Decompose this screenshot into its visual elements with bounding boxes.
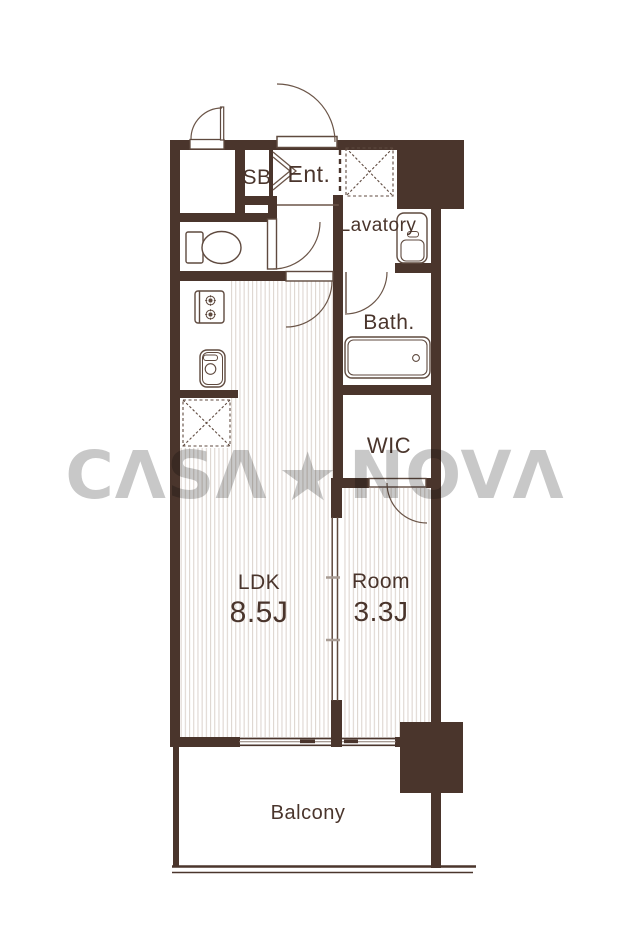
label-bath: Bath. xyxy=(363,311,415,334)
door-swing-arc xyxy=(277,84,335,142)
corner-block-top-right xyxy=(397,140,464,209)
wall-left xyxy=(170,140,180,747)
door-leaf xyxy=(277,137,337,148)
wall-kitchen-stub xyxy=(176,390,238,398)
kitchen-sink-fixture xyxy=(200,350,225,387)
door-swing-arc xyxy=(191,108,222,139)
ldk-floor xyxy=(230,281,333,737)
partition-stub-top xyxy=(331,478,342,518)
door-leaf xyxy=(369,479,426,488)
wall-wic-bottom-right xyxy=(426,478,441,488)
entrance-door xyxy=(277,84,337,148)
door-swing-arc xyxy=(345,272,387,314)
label-room: Room xyxy=(352,570,410,593)
window-center-stile xyxy=(300,740,315,744)
storage-door xyxy=(190,107,224,149)
bath-door xyxy=(345,272,387,314)
label-lavatory: Lavatory xyxy=(340,215,417,236)
kitchen-stove-fixture xyxy=(195,291,224,323)
partition-stub-bottom xyxy=(331,700,342,747)
label-balcony: Balcony xyxy=(271,802,346,824)
sliding-windows xyxy=(239,739,396,746)
door-leaf xyxy=(268,219,277,269)
wall-toilet-bottom xyxy=(170,271,286,281)
door-swing-arc xyxy=(273,222,320,269)
wall-bottom-left xyxy=(170,737,240,747)
label-ldk-area: 8.5J xyxy=(230,596,289,629)
label-sb: SB xyxy=(242,166,271,189)
ldk-floor-left-strip xyxy=(180,448,232,737)
window-center-stile xyxy=(344,740,358,744)
bathtub-fixture xyxy=(345,337,430,378)
refrigerator-space xyxy=(183,400,230,446)
label-room-area: 3.3J xyxy=(354,596,409,627)
door-leaf xyxy=(221,107,224,140)
balcony-pillar xyxy=(400,722,463,793)
ground-lines xyxy=(172,867,476,873)
wall-hall-lavatory xyxy=(333,195,343,488)
balcony-wall-left xyxy=(173,747,179,867)
window-ldk xyxy=(239,739,331,746)
toilet-fixture xyxy=(186,232,241,264)
floor-plan-drawing: SB Ent. Lavatory Bath. WIC LDK 8.5J Room… xyxy=(0,0,630,950)
window-room xyxy=(342,739,396,746)
label-ldk: LDK xyxy=(238,571,280,594)
wall-bath-bottom xyxy=(333,385,441,395)
wall-toilet-top xyxy=(180,213,277,222)
label-ent: Ent. xyxy=(288,161,331,187)
door-leaf xyxy=(286,272,333,282)
floor-plan: SB Ent. Lavatory Bath. WIC LDK 8.5J Room… xyxy=(0,0,630,950)
washing-machine-space xyxy=(346,148,393,196)
wall-lavatory-bottom xyxy=(395,263,441,273)
toilet-door xyxy=(268,219,321,269)
label-wic: WIC xyxy=(367,433,411,458)
